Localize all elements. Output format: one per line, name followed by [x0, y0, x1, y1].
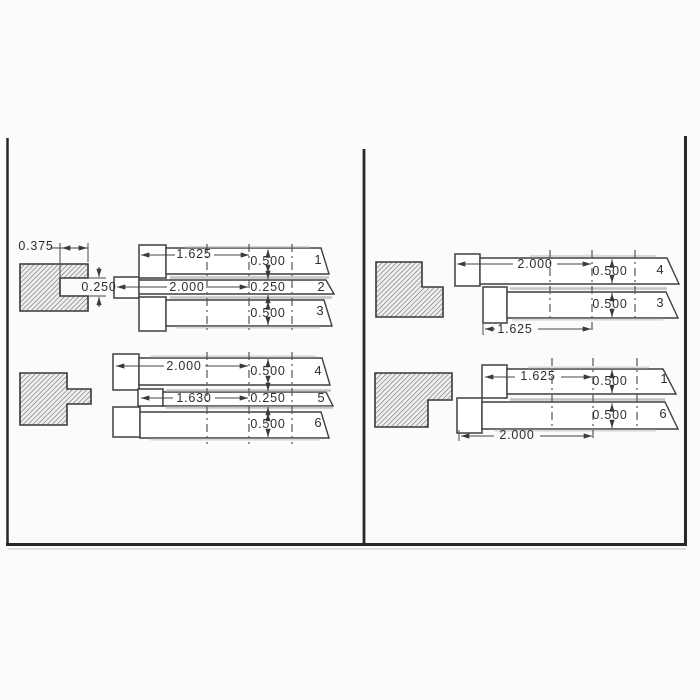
width-label: 0.500 — [250, 417, 285, 431]
left-bottom-group: 2.000 0.500 4 1.630 0.250 5 0.500 6 — [20, 352, 333, 444]
strip-number: 6 — [314, 415, 321, 430]
width-label: 0.500 — [250, 254, 285, 268]
strip-6-block — [457, 398, 482, 433]
step-block-lower — [375, 373, 452, 427]
right-top-group: 2.000 0.500 4 0.500 3 1.625 — [376, 250, 679, 336]
strip-4-block — [113, 354, 139, 390]
slot-depth-label: 0.375 — [18, 239, 53, 253]
strip-4-block — [455, 254, 480, 286]
strip-6-block — [113, 407, 140, 437]
width-label: 0.500 — [592, 264, 627, 278]
slot-width-label: 0.250 — [81, 280, 116, 294]
strip-3-block — [139, 297, 166, 331]
slotted-block — [20, 264, 88, 311]
strip-number: 3 — [656, 295, 663, 310]
width-label: 0.250 — [250, 280, 285, 294]
width-label: 0.500 — [592, 408, 627, 422]
strip-6-band — [482, 402, 678, 429]
strip-number: 5 — [317, 390, 324, 405]
strip-1-block — [482, 365, 507, 398]
width-label: 0.500 — [592, 297, 627, 311]
width-label: 0.500 — [592, 374, 627, 388]
strip-number: 1 — [314, 252, 321, 267]
right-bottom-group: 1.625 0.500 1 0.500 6 2.000 — [375, 358, 678, 442]
length-label: 1.625 — [497, 322, 532, 336]
step-block-upper — [376, 262, 443, 317]
left-top-group: 0.375 0.250 1.625 0.500 1 2.000 — [18, 239, 334, 333]
strip-4-band — [480, 258, 679, 284]
engineering-drawing: 0.375 0.250 1.625 0.500 1 2.000 — [0, 0, 700, 700]
strip-number: 4 — [314, 363, 321, 378]
length-label: 2.000 — [166, 359, 201, 373]
length-label: 1.625 — [176, 247, 211, 261]
strip-number: 3 — [316, 303, 323, 318]
strip-1-block — [139, 245, 166, 278]
length-label: 2.000 — [517, 257, 552, 271]
width-label: 0.500 — [250, 364, 285, 378]
width-label: 0.250 — [250, 391, 285, 405]
length-label: 1.630 — [176, 391, 211, 405]
strip-3-block — [483, 287, 507, 323]
tab-block — [20, 373, 91, 425]
length-label: 2.000 — [169, 280, 204, 294]
strip-number: 6 — [659, 406, 666, 421]
strip-number: 1 — [660, 371, 667, 386]
page-frame — [6, 136, 687, 549]
strip-number: 4 — [656, 262, 663, 277]
length-label: 2.000 — [499, 428, 534, 442]
length-label: 1.625 — [520, 369, 555, 383]
dim-strip-3-length: 1.625 — [483, 322, 591, 336]
width-label: 0.500 — [250, 306, 285, 320]
strip-number: 2 — [317, 279, 324, 294]
strip-6-band — [140, 412, 329, 438]
